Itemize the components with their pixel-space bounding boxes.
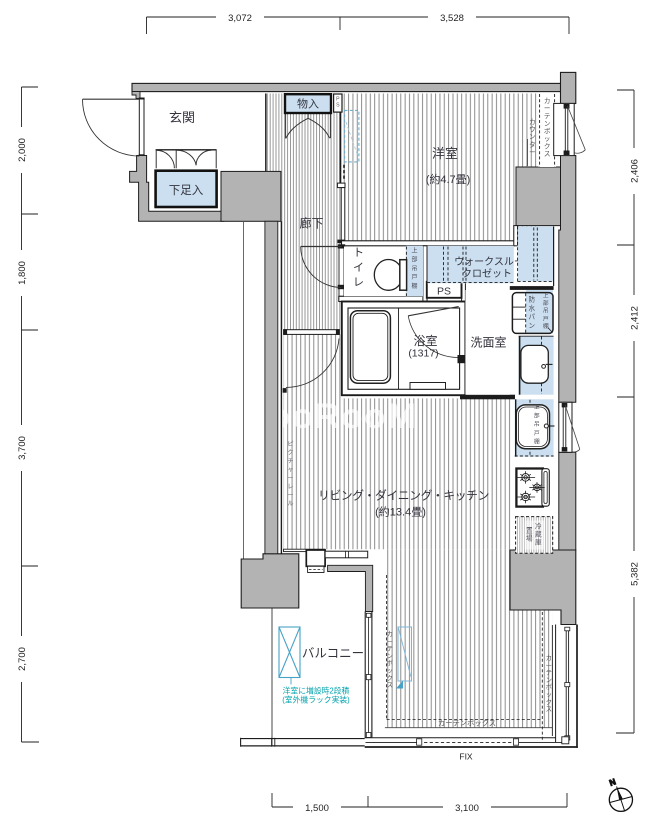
- svg-text:ン: ン: [529, 323, 536, 330]
- svg-text:玄関: 玄関: [169, 110, 195, 125]
- svg-text:(約4.7畳): (約4.7畳): [426, 172, 471, 186]
- svg-text:ー: ー: [387, 638, 393, 645]
- svg-text:洗面室: 洗面室: [470, 335, 506, 350]
- svg-text:洋室に増設時2段積: 洋室に増設時2段積: [283, 686, 350, 696]
- svg-text:2,412: 2,412: [630, 306, 641, 330]
- svg-text:ー: ー: [544, 106, 551, 113]
- svg-text:カ: カ: [546, 654, 552, 662]
- svg-text:ャ: ャ: [287, 467, 293, 474]
- svg-text:水: 水: [529, 303, 536, 312]
- svg-text:庫: 庫: [535, 538, 542, 547]
- svg-text:2,000: 2,000: [17, 138, 28, 162]
- svg-text:ボ: ボ: [546, 683, 553, 691]
- svg-text:イ: イ: [353, 262, 364, 274]
- svg-text:ス: ス: [544, 150, 551, 158]
- svg-text:(約13.4畳): (約13.4畳): [375, 505, 426, 519]
- svg-text:2,700: 2,700: [17, 647, 28, 671]
- svg-text:部: 部: [411, 255, 417, 263]
- svg-text:レ: レ: [353, 277, 364, 289]
- svg-text:ウ: ウ: [529, 126, 536, 134]
- svg-text:ン: ン: [387, 653, 393, 660]
- svg-text:吊: 吊: [543, 308, 549, 315]
- svg-text:テ: テ: [387, 645, 393, 653]
- svg-text:部: 部: [543, 299, 549, 307]
- svg-text:ボ: ボ: [387, 659, 394, 667]
- svg-text:上: 上: [543, 291, 549, 299]
- svg-text:ス: ス: [546, 705, 552, 713]
- svg-text:3,072: 3,072: [228, 13, 252, 24]
- svg-text:ク: ク: [544, 143, 551, 151]
- svg-text:タ: タ: [529, 140, 536, 149]
- svg-text:1,800: 1,800: [17, 261, 28, 285]
- svg-text:ピ: ピ: [287, 441, 293, 448]
- svg-text:ク: ク: [287, 450, 293, 457]
- svg-text:廊下: 廊下: [299, 216, 323, 231]
- svg-text:テ: テ: [544, 112, 551, 120]
- svg-text:ン: ン: [544, 121, 551, 128]
- svg-text:チ: チ: [287, 458, 293, 465]
- svg-text:戸: 戸: [411, 274, 417, 281]
- svg-text:S: S: [336, 102, 340, 108]
- svg-text:棚: 棚: [534, 437, 540, 445]
- svg-text:ン: ン: [529, 134, 536, 141]
- svg-text:防: 防: [529, 295, 536, 304]
- svg-text:ウォークスルー: ウォークスルー: [454, 256, 524, 268]
- svg-text:上: 上: [534, 403, 540, 411]
- svg-text:カ: カ: [544, 97, 551, 105]
- svg-text:FIX: FIX: [459, 752, 473, 762]
- svg-text:3,528: 3,528: [440, 13, 464, 24]
- svg-text:浴室: 浴室: [413, 333, 437, 348]
- svg-text:カ: カ: [387, 630, 393, 638]
- svg-text:ト: ト: [353, 247, 364, 259]
- svg-text:ッ: ッ: [544, 136, 551, 143]
- svg-text:場: 場: [526, 534, 533, 543]
- svg-text:2,406: 2,406: [630, 159, 641, 183]
- svg-text:ー: ー: [546, 662, 552, 669]
- svg-text:戸: 戸: [543, 315, 549, 322]
- svg-text:ク: ク: [546, 698, 552, 706]
- svg-text:(室外機ラック実装): (室外機ラック実装): [282, 695, 350, 705]
- svg-text:カ: カ: [529, 118, 536, 126]
- svg-text:ー: ー: [287, 475, 293, 482]
- svg-text:部: 部: [534, 412, 540, 420]
- svg-text:戸: 戸: [534, 430, 540, 437]
- svg-text:5,382: 5,382: [630, 562, 641, 586]
- svg-text:棚: 棚: [411, 282, 417, 290]
- svg-text:PS: PS: [437, 285, 451, 297]
- svg-text:ク: ク: [387, 674, 393, 682]
- svg-text:1,500: 1,500: [305, 803, 329, 814]
- svg-text:下足入: 下足入: [169, 184, 204, 197]
- svg-text:物入: 物入: [297, 97, 319, 111]
- svg-text:パ: パ: [529, 313, 536, 321]
- svg-text:上: 上: [411, 247, 417, 255]
- svg-text:3,700: 3,700: [17, 436, 28, 460]
- svg-text:洋室: 洋室: [432, 146, 458, 161]
- svg-text:テ: テ: [546, 669, 552, 677]
- svg-text:クロゼット: クロゼット: [462, 268, 512, 280]
- svg-text:カーテンボックス: カーテンボックス: [438, 719, 496, 728]
- svg-text:ボ: ボ: [544, 127, 551, 135]
- svg-text:ン: ン: [546, 677, 552, 684]
- svg-text:ル: ル: [287, 501, 293, 508]
- svg-text:蔵: 蔵: [535, 530, 542, 539]
- svg-text:ッ: ッ: [387, 668, 393, 675]
- svg-text:吊: 吊: [411, 265, 417, 272]
- svg-text:バルコニー: バルコニー: [302, 647, 364, 661]
- svg-text:ス: ス: [387, 681, 393, 689]
- svg-text:ー: ー: [287, 492, 293, 499]
- svg-text:リビング・ダイニング・キッチン: リビング・ダイニング・キッチン: [318, 489, 489, 503]
- svg-text:レ: レ: [287, 484, 293, 491]
- svg-text:ッ: ッ: [546, 692, 552, 699]
- svg-text:冷: 冷: [535, 522, 542, 531]
- svg-text:置: 置: [526, 527, 533, 535]
- svg-text:吊: 吊: [534, 421, 540, 428]
- svg-text:3,100: 3,100: [455, 803, 479, 814]
- svg-text:棚: 棚: [543, 322, 549, 330]
- svg-text:ー: ー: [529, 149, 536, 156]
- svg-text:(1317): (1317): [408, 348, 438, 360]
